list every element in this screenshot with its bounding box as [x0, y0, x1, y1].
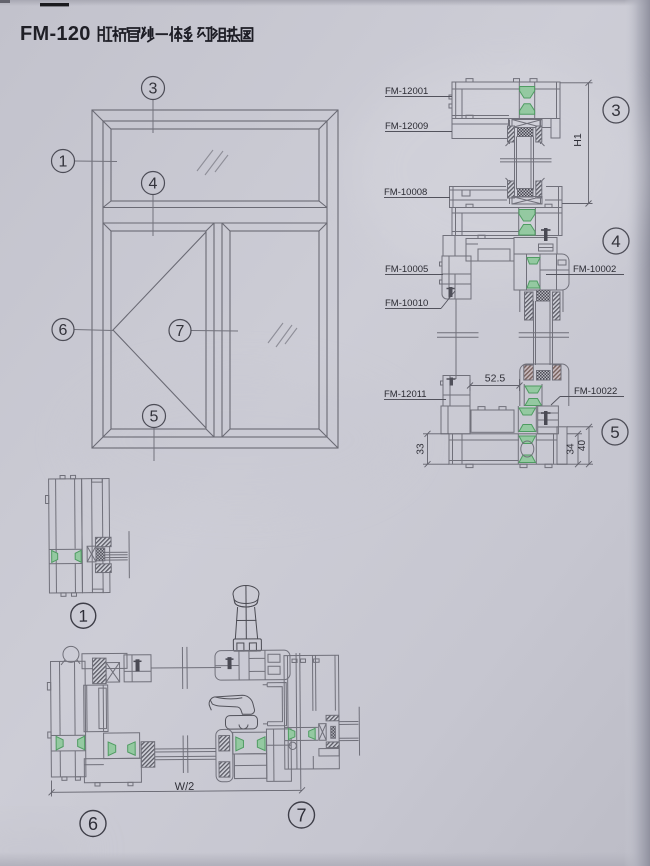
svg-text:52.5: 52.5: [485, 373, 506, 385]
svg-text:7: 7: [176, 323, 185, 340]
svg-text:1: 1: [78, 607, 88, 626]
svg-text:6: 6: [88, 814, 98, 834]
svg-text:3: 3: [149, 81, 158, 98]
svg-text:FM-10010: FM-10010: [385, 298, 428, 309]
svg-text:W/2: W/2: [175, 781, 195, 793]
svg-text:FM-12001: FM-12001: [385, 86, 428, 97]
svg-text:34: 34: [566, 443, 577, 455]
svg-text:FM-12011: FM-12011: [384, 389, 427, 400]
svg-text:1: 1: [59, 154, 68, 171]
svg-text:H1: H1: [572, 133, 584, 147]
svg-text:4: 4: [611, 232, 620, 251]
svg-text:6: 6: [59, 322, 68, 339]
svg-text:4: 4: [149, 176, 158, 193]
svg-text:FM-120: FM-120: [20, 23, 91, 45]
svg-text:FM-10022: FM-10022: [574, 386, 617, 397]
svg-text:33: 33: [416, 443, 427, 455]
svg-text:7: 7: [296, 806, 306, 826]
svg-text:3: 3: [611, 101, 620, 120]
svg-text:5: 5: [610, 423, 619, 442]
svg-text:FM-12009: FM-12009: [385, 121, 428, 132]
svg-text:FM-10005: FM-10005: [385, 264, 428, 275]
svg-text:FM-10002: FM-10002: [573, 264, 616, 275]
svg-text:FM-10008: FM-10008: [384, 187, 427, 198]
svg-text:5: 5: [150, 409, 159, 426]
svg-text:40: 40: [577, 440, 588, 452]
